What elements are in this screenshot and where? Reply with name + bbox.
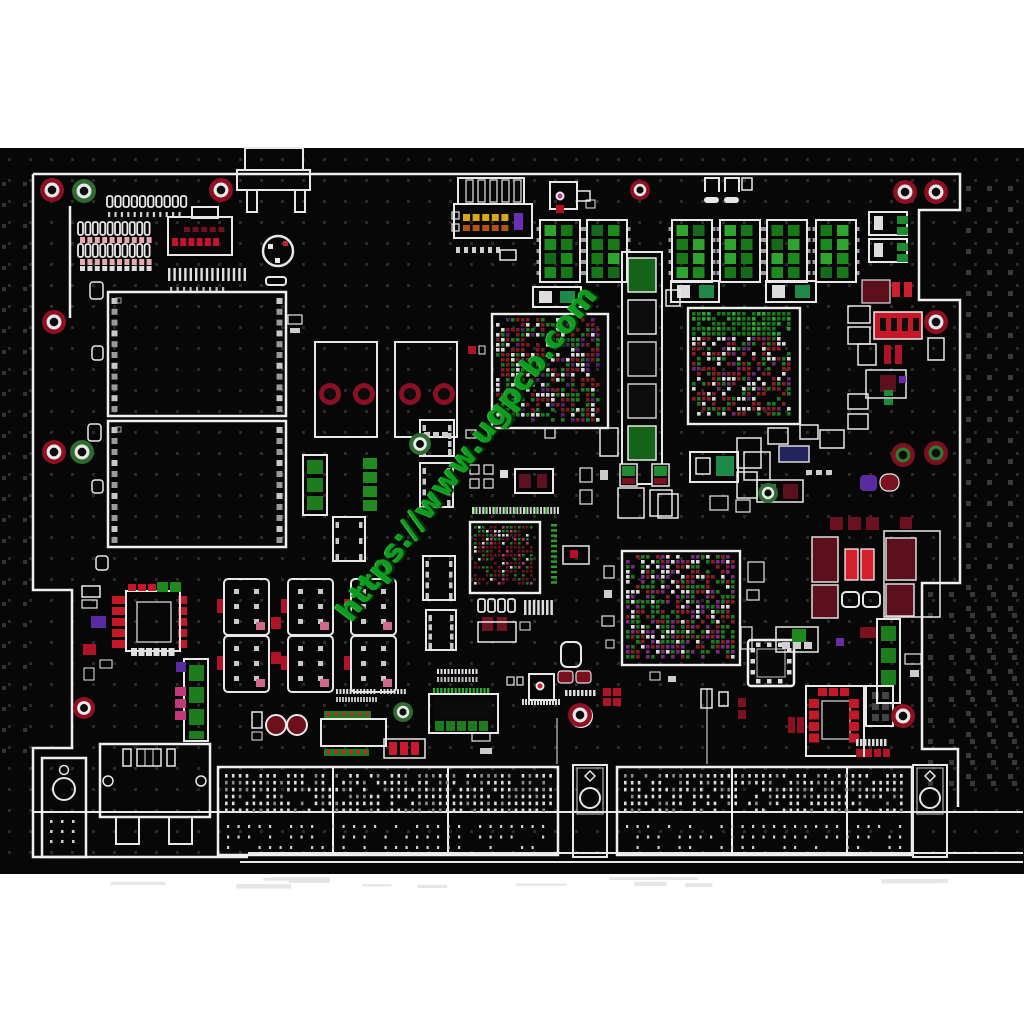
pcb-canvas [0, 0, 1024, 1024]
qfp-green-1 [157, 582, 168, 592]
maroon-bit [860, 627, 877, 638]
sot-1-r [622, 478, 635, 484]
maroon-cap-4 [886, 584, 914, 616]
red-trio [389, 742, 419, 755]
mounting-hole-red [924, 310, 948, 334]
maroon-sq [900, 517, 912, 529]
red-cap-2 [861, 549, 874, 580]
transformer-pad-2 [353, 383, 375, 405]
tr-box-d-m [880, 375, 896, 392]
mounting-hole-red [73, 697, 95, 719]
misc-15 [480, 748, 492, 754]
mounting-hole-green [70, 440, 94, 464]
pair-chip-3-g [795, 285, 810, 298]
pcb-assembly-image: https://www.ugpcb.com [0, 0, 1024, 1024]
red-blob [880, 474, 899, 491]
qfp-pads-top [128, 584, 156, 591]
sot-1-g [622, 466, 635, 476]
red-cap-1 [845, 549, 858, 580]
cam-dot [537, 683, 544, 690]
mounting-hole-red [924, 441, 948, 465]
edge-pill-1 [704, 197, 719, 203]
soic-red-b [271, 652, 281, 664]
pair-chip-1-w [539, 291, 552, 303]
green-bit-1 [884, 390, 893, 396]
ic-maroon-pad1 [519, 474, 531, 488]
pad-chain-2 [628, 300, 656, 334]
tr-maroon [862, 280, 890, 303]
board-background [0, 148, 1024, 874]
mounting-hole-red [42, 440, 66, 464]
tr-purple-dot [899, 376, 906, 383]
page: https://www.ugpcb.com [0, 0, 1024, 1024]
pair-chip-2-w [677, 285, 690, 298]
green-strip-pads [881, 626, 896, 685]
red-qfp-die [822, 701, 850, 739]
green-conn-c-pads [189, 665, 204, 725]
green-bar-2 [324, 749, 369, 756]
knob-2 [287, 715, 307, 735]
m-box-pads [782, 642, 812, 649]
green-conn-c-end [189, 731, 204, 739]
gc-magenta [175, 687, 186, 720]
mounting-hole-red [891, 704, 915, 728]
transformer-pad-1 [319, 383, 341, 405]
gc-purple [176, 662, 186, 672]
misc-1r [570, 550, 578, 558]
dip-conn-pads [435, 721, 488, 731]
bl-purple [91, 616, 106, 628]
so-box-pads-2 [882, 692, 889, 721]
pair-chip-1-g [560, 291, 575, 303]
rm-pads [806, 470, 832, 475]
qfp-green-2 [170, 582, 181, 592]
small-pad-b [556, 205, 564, 213]
dr-pad-1 [482, 617, 493, 631]
knob-1 [266, 715, 286, 735]
mounting-hole-red [630, 180, 650, 200]
pad-chain-1 [628, 258, 656, 292]
mounting-hole-green [393, 702, 413, 722]
inductor-blue [779, 446, 809, 462]
purple-dot-2 [836, 638, 844, 646]
dr-round-2 [576, 671, 591, 683]
misc-13 [668, 676, 676, 682]
qfp-pads-left [112, 596, 126, 648]
rb-bit-2 [910, 670, 919, 677]
top-conn-pads-orange [463, 225, 508, 231]
transformer-pad-3 [399, 383, 421, 405]
mounting-hole-green [72, 179, 96, 203]
mounting-hole-red [893, 180, 917, 204]
purple-blob [860, 475, 877, 491]
maroon-cap-2 [886, 538, 916, 580]
mounting-hole-red [40, 178, 64, 202]
maroon-row [830, 517, 879, 530]
dc-jack-pad1 [268, 244, 273, 249]
red-qfp-pads-t [818, 688, 849, 696]
green-box-g [716, 456, 734, 476]
green-bar-1 [324, 711, 371, 718]
mounting-hole-green [758, 483, 778, 503]
soic-red-a [271, 617, 281, 629]
bl-red [83, 644, 96, 655]
green-sq [792, 629, 806, 642]
green-conn-a-pads [307, 460, 323, 510]
mounting-hole-red [891, 443, 915, 467]
mounting-hole-red [568, 703, 592, 727]
dc-jack-pad3 [275, 258, 280, 263]
dc-jack-pad2 [283, 241, 288, 246]
transformer-pad-4 [433, 383, 455, 405]
mounting-hole-green [409, 433, 431, 455]
top-conn-pad-purple [514, 213, 523, 230]
sot-2-g [654, 466, 667, 476]
misc-9 [604, 590, 612, 598]
pad-chain-5 [628, 426, 656, 460]
glyph-7 [290, 328, 300, 333]
mounting-hole-red [209, 178, 233, 202]
maroon-cap-3 [812, 585, 838, 618]
dip-conn-fill [434, 699, 492, 719]
tr-box-pad1 [874, 216, 883, 230]
rb-bar-2 [797, 717, 804, 733]
tr-box-pad2 [874, 243, 883, 257]
pair-chip-3-w [772, 285, 785, 298]
mounting-hole-red [42, 310, 66, 334]
green-bit-2 [884, 399, 893, 405]
gr-ic-maroon [783, 484, 798, 499]
pad-chain-4 [628, 384, 656, 418]
sot-2-r [654, 478, 667, 484]
mounting-hole-red [924, 180, 948, 204]
dr-round-1 [558, 671, 573, 683]
glyph-8 [468, 346, 476, 354]
top-conn-pads-yellow [463, 214, 508, 221]
pin-strip-long [168, 268, 246, 281]
maroon-cap-1 [812, 537, 838, 582]
pair-chip-2-g [699, 285, 714, 298]
misc-4 [600, 470, 608, 480]
dr-pad-2 [497, 617, 507, 631]
cap-sq-5 [500, 470, 508, 478]
edge-pill-2 [724, 197, 739, 203]
rb-bar-1 [788, 717, 795, 733]
pad-chain-3 [628, 342, 656, 376]
ic-maroon-pad2 [537, 474, 547, 488]
xtal-dot [557, 193, 564, 200]
